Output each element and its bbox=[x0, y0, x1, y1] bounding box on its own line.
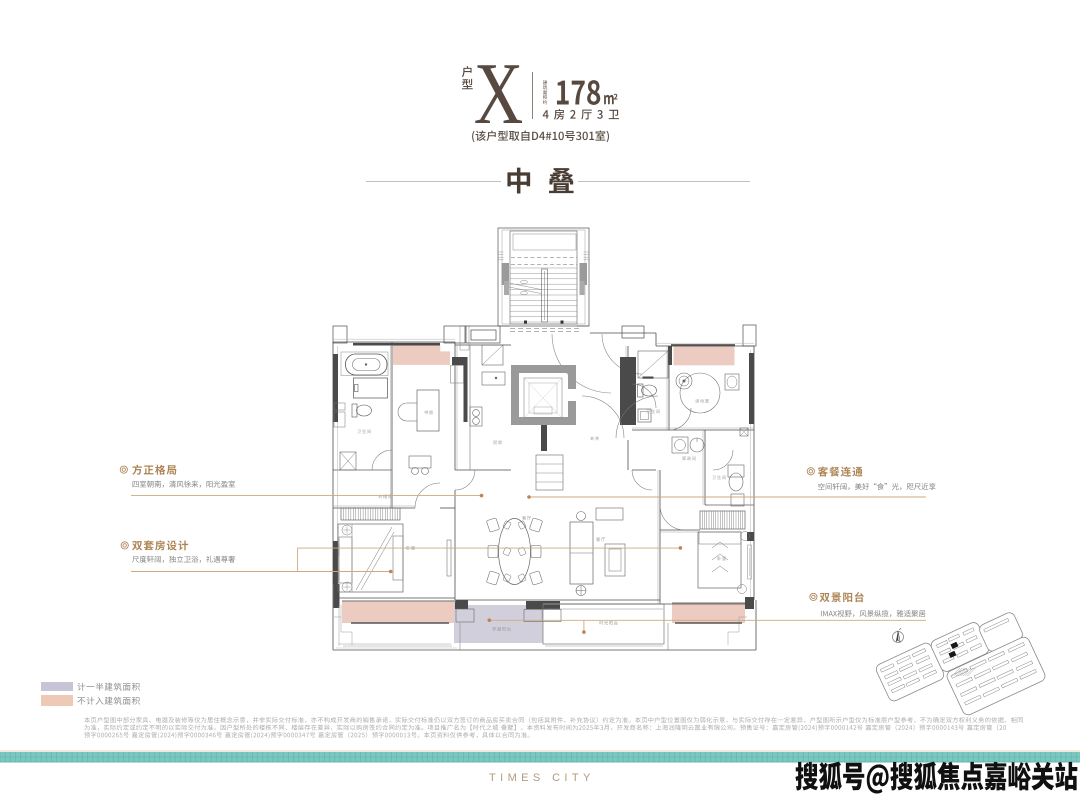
svg-text:TIMES CITY: TIMES CITY bbox=[489, 772, 595, 784]
svg-text:X: X bbox=[474, 46, 524, 143]
